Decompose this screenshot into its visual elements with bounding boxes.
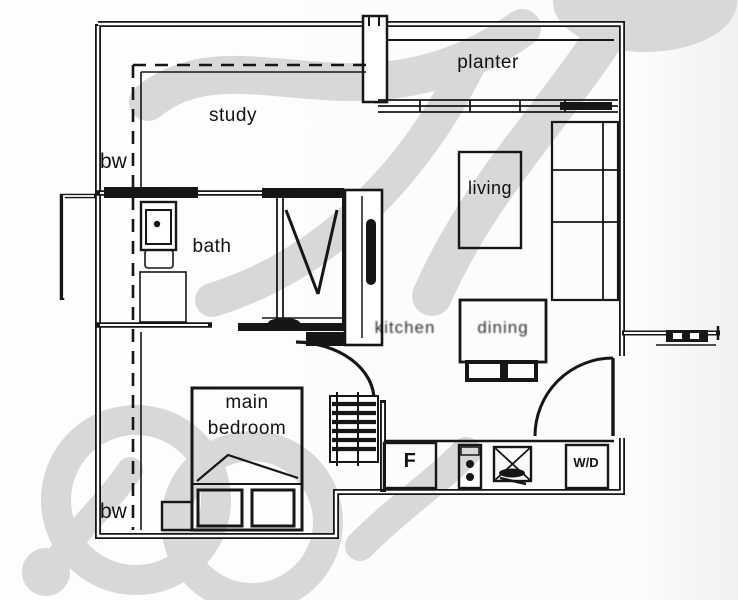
room-label-planter: planter [430,52,546,74]
bath-cabinet [140,272,186,322]
fridge-label: F [384,450,436,473]
pillow [252,490,294,526]
dining-table-icon [460,300,546,380]
wardrobe-icon [552,122,618,300]
room-label-main-bedroom-line1: main [225,392,268,413]
entry-wall-stub [622,326,720,345]
bedroom-door-arc [296,342,374,400]
room-label-main-bedroom-line2: bedroom [208,418,287,439]
washer-dryer-label: W/D [564,456,608,471]
rack-icon [330,392,378,466]
bay-window-label-bottom: bw [100,500,140,524]
room-label-study: study [185,105,281,127]
dining-chair [506,362,536,380]
bay-window-label-top: bw [100,150,140,174]
room-label-dining: dining [460,318,546,338]
entrance-door-arc [535,358,613,436]
left-wall-stub [62,196,96,300]
room-label-kitchen: kitchen [360,318,450,338]
room-label-living: living [459,178,521,199]
room-label-main-bedroom: main bedroom [192,390,302,441]
toilet-icon [141,202,176,268]
floor-plan: planter study bw bw living bath kitchen … [0,0,738,600]
basin-icon [238,318,352,346]
dining-chair [467,362,502,380]
room-label-bath: bath [168,236,256,258]
sink-icon [494,447,531,484]
